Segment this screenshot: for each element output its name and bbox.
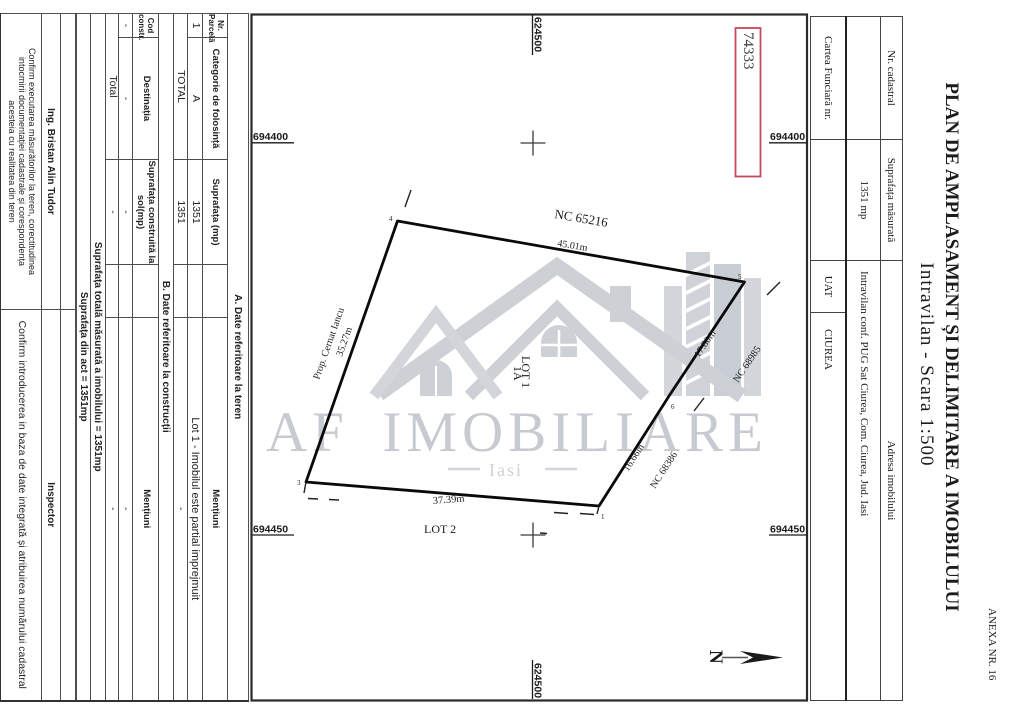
svg-text:Iasi: Iasi <box>489 460 523 480</box>
svg-text:5: 5 <box>738 273 742 281</box>
svg-text:694450: 694450 <box>253 524 288 536</box>
svg-text:AF IMOBILIARE: AF IMOBILIARE <box>266 401 768 464</box>
svg-text:694400: 694400 <box>253 131 288 143</box>
svg-text:694450: 694450 <box>770 524 805 536</box>
svg-text:NC 65216: NC 65216 <box>554 206 610 230</box>
svg-text:74333: 74333 <box>740 32 756 70</box>
svg-text:6: 6 <box>671 403 675 411</box>
svg-text:624500: 624500 <box>532 663 544 698</box>
svg-text:LOT 2: LOT 2 <box>424 522 456 536</box>
svg-text:1: 1 <box>601 513 605 521</box>
svg-text:45.01m: 45.01m <box>557 238 589 254</box>
svg-text:624500: 624500 <box>532 17 544 52</box>
svg-text:37.39m: 37.39m <box>432 494 465 507</box>
svg-text:1A: 1A <box>511 366 525 381</box>
svg-text:3: 3 <box>297 479 301 487</box>
svg-text:4: 4 <box>389 215 393 223</box>
svg-text:694400: 694400 <box>770 131 805 143</box>
